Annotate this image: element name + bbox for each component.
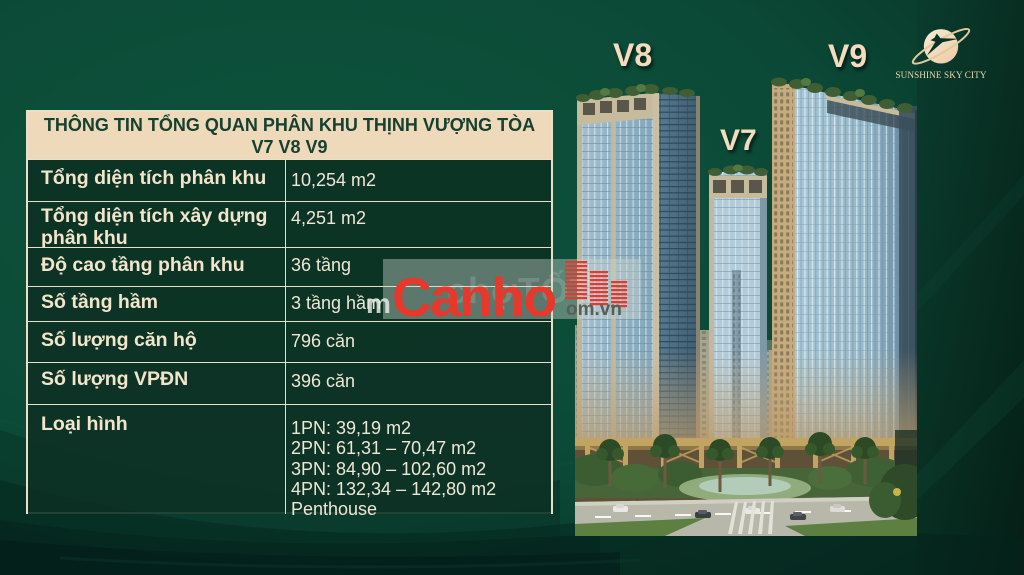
svg-text:SUNSHINE SKY CITY: SUNSHINE SKY CITY bbox=[895, 70, 986, 80]
